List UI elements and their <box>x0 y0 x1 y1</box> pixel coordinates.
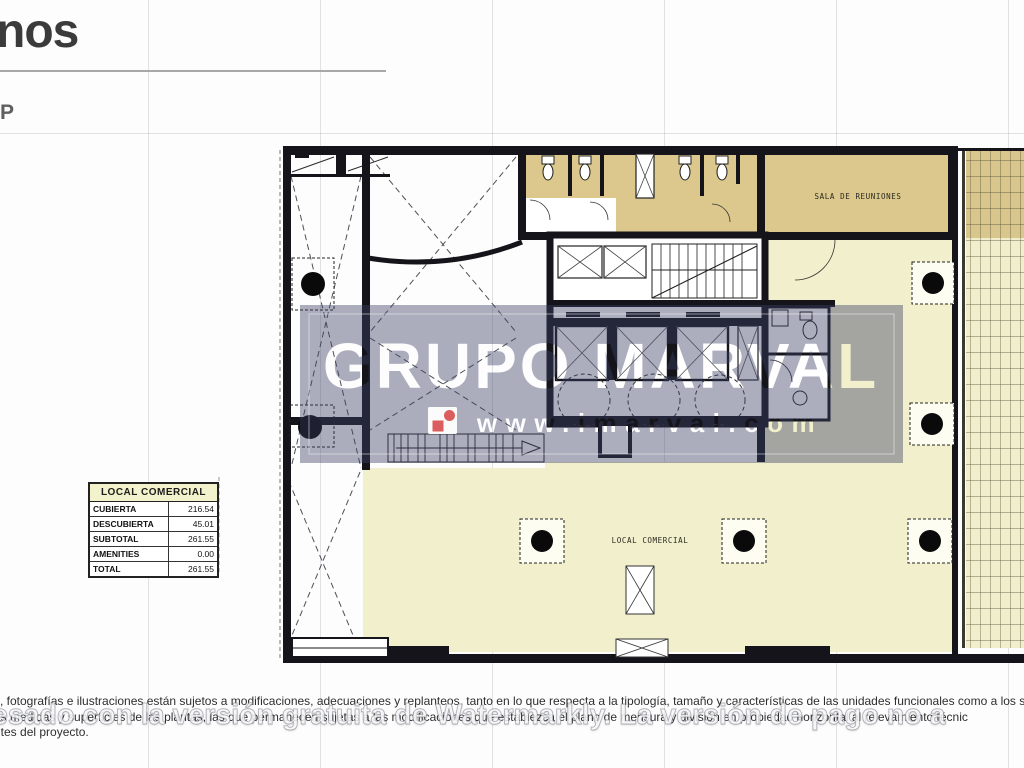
row-label: DESCUBIERTA <box>89 517 169 532</box>
row-label: AMENITIES <box>89 547 169 562</box>
storefront-opening <box>292 638 388 657</box>
area-summary-table: LOCAL COMERCIAL CUBIERTA 216.54 DESCUBIE… <box>88 482 219 578</box>
table-row: TOTAL 261.55 <box>89 562 218 578</box>
marval-logo-icon <box>428 407 457 434</box>
meeting-room-label: SALA DE REUNIONES <box>815 192 902 201</box>
row-label: TOTAL <box>89 562 169 578</box>
row-value: 261.55 <box>169 562 219 578</box>
watermarkly-watermark: esado con la versión gratuita de Waterma… <box>0 699 945 732</box>
table-row: SUBTOTAL 261.55 <box>89 532 218 547</box>
deck-terrace <box>958 148 1024 648</box>
row-value: 216.54 <box>169 502 219 517</box>
commercial-area-label: LOCAL COMERCIAL <box>612 536 689 545</box>
listing-page: nos P GRUPO MARVAL www.imarval.com SALA … <box>0 0 1024 768</box>
table-row: DESCUBIERTA 45.01 <box>89 517 218 532</box>
row-label: CUBIERTA <box>89 502 169 517</box>
table-row: CUBIERTA 216.54 <box>89 502 218 517</box>
stairs <box>652 244 757 298</box>
row-value: 45.01 <box>169 517 219 532</box>
area-table-header: LOCAL COMERCIAL <box>89 483 218 502</box>
table-row: AMENITIES 0.00 <box>89 547 218 562</box>
meeting-room: SALA DE REUNIONES <box>765 154 948 232</box>
watermark-box <box>300 305 903 463</box>
floor-plan: GRUPO MARVAL www.imarval.com SALA DE REU… <box>0 0 1024 768</box>
row-value: 0.00 <box>169 547 219 562</box>
reference-lines <box>219 150 280 660</box>
row-value: 261.55 <box>169 532 219 547</box>
curved-wall <box>368 242 522 262</box>
row-label: SUBTOTAL <box>89 532 169 547</box>
